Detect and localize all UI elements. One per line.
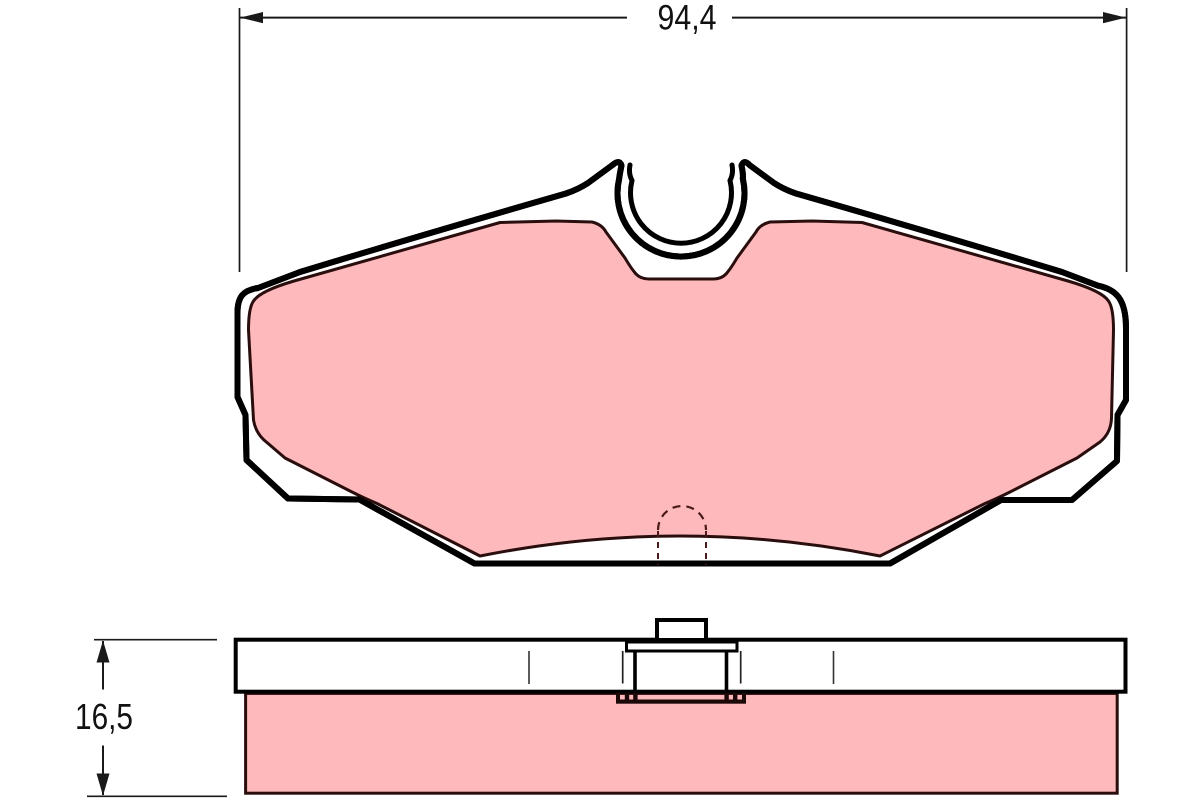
svg-text:16,5: 16,5 [75, 696, 133, 737]
svg-text:94,4: 94,4 [658, 0, 717, 38]
